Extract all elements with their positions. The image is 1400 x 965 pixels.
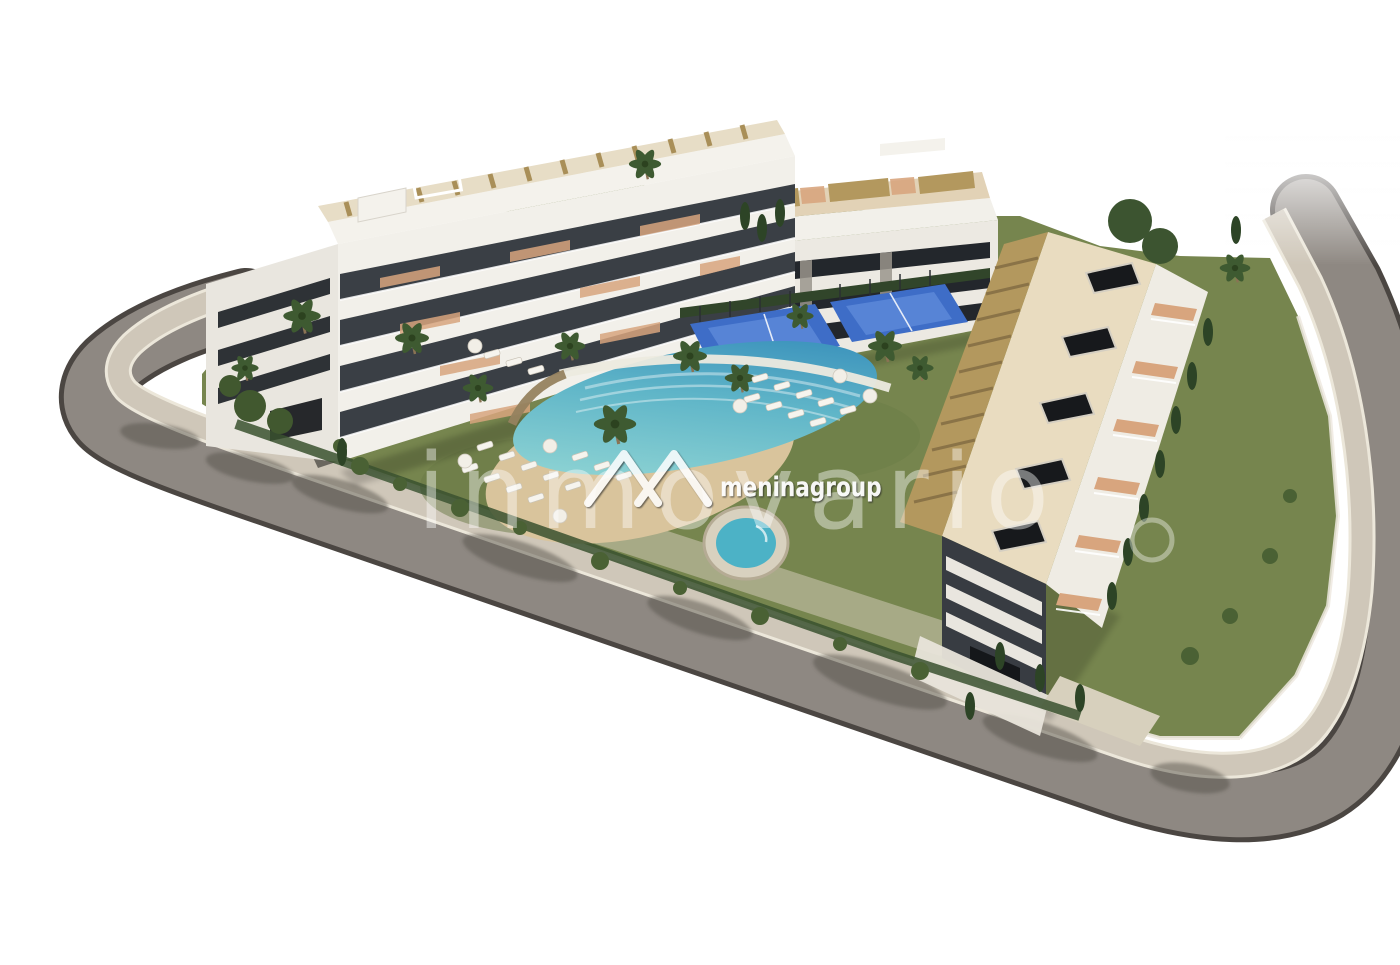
watermark-layer: inmovario meninagroup [417, 431, 1172, 560]
road-fade-topright [1225, 136, 1400, 266]
middle-pergola-frame [860, 158, 923, 178]
watermark-brand-text: meninagroup [720, 471, 882, 503]
middle-roof-terrace [890, 177, 916, 195]
middle-rooftop-frame [880, 138, 945, 156]
architectural-render: inmovario meninagroup [40, 16, 1400, 949]
render-scene: inmovario meninagroup [40, 16, 1400, 949]
middle-roof-terrace [800, 186, 826, 204]
